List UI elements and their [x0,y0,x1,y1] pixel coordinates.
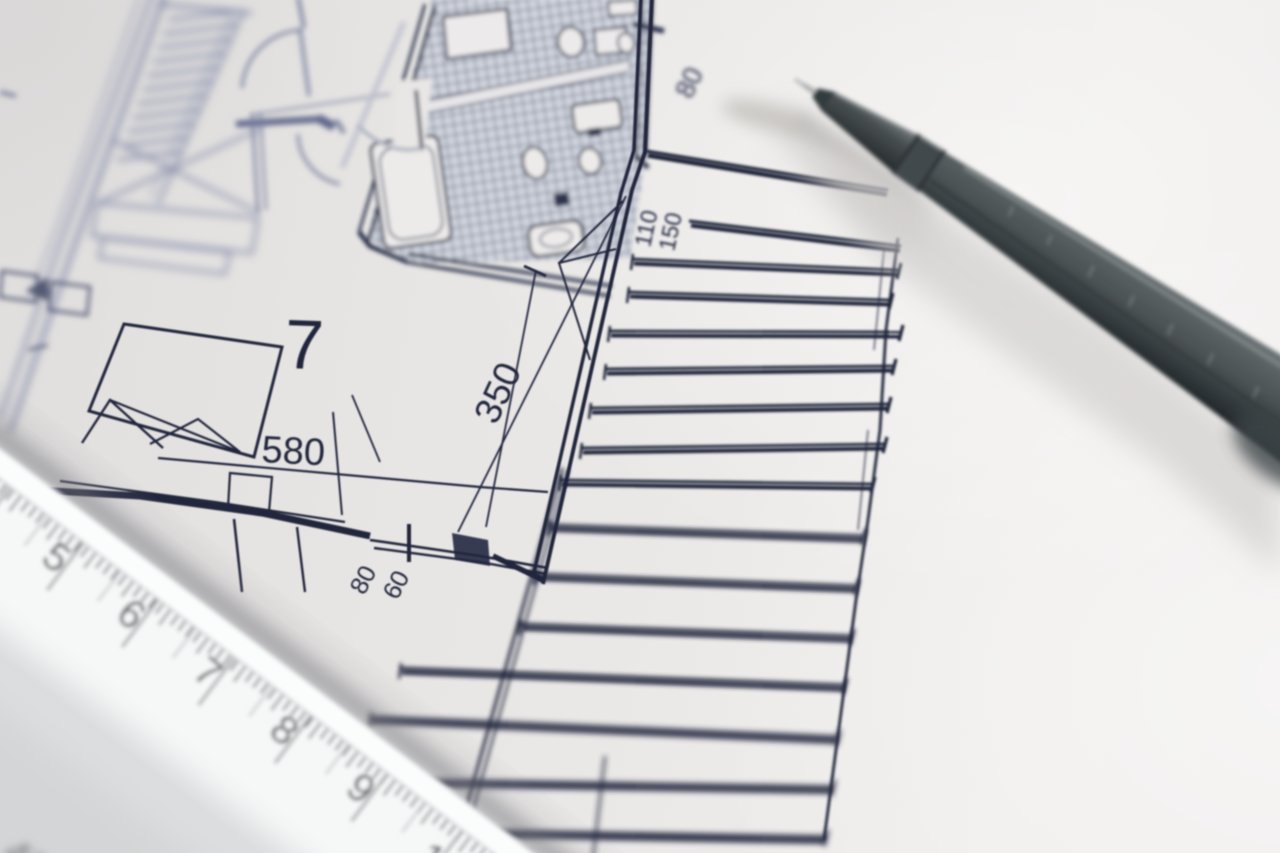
svg-text:350: 350 [466,356,529,429]
svg-text:60: 60 [378,566,416,604]
svg-text:80: 80 [669,63,709,103]
svg-text:7: 7 [283,305,325,384]
svg-text:580: 580 [261,429,327,474]
svg-text:80: 80 [345,561,383,599]
